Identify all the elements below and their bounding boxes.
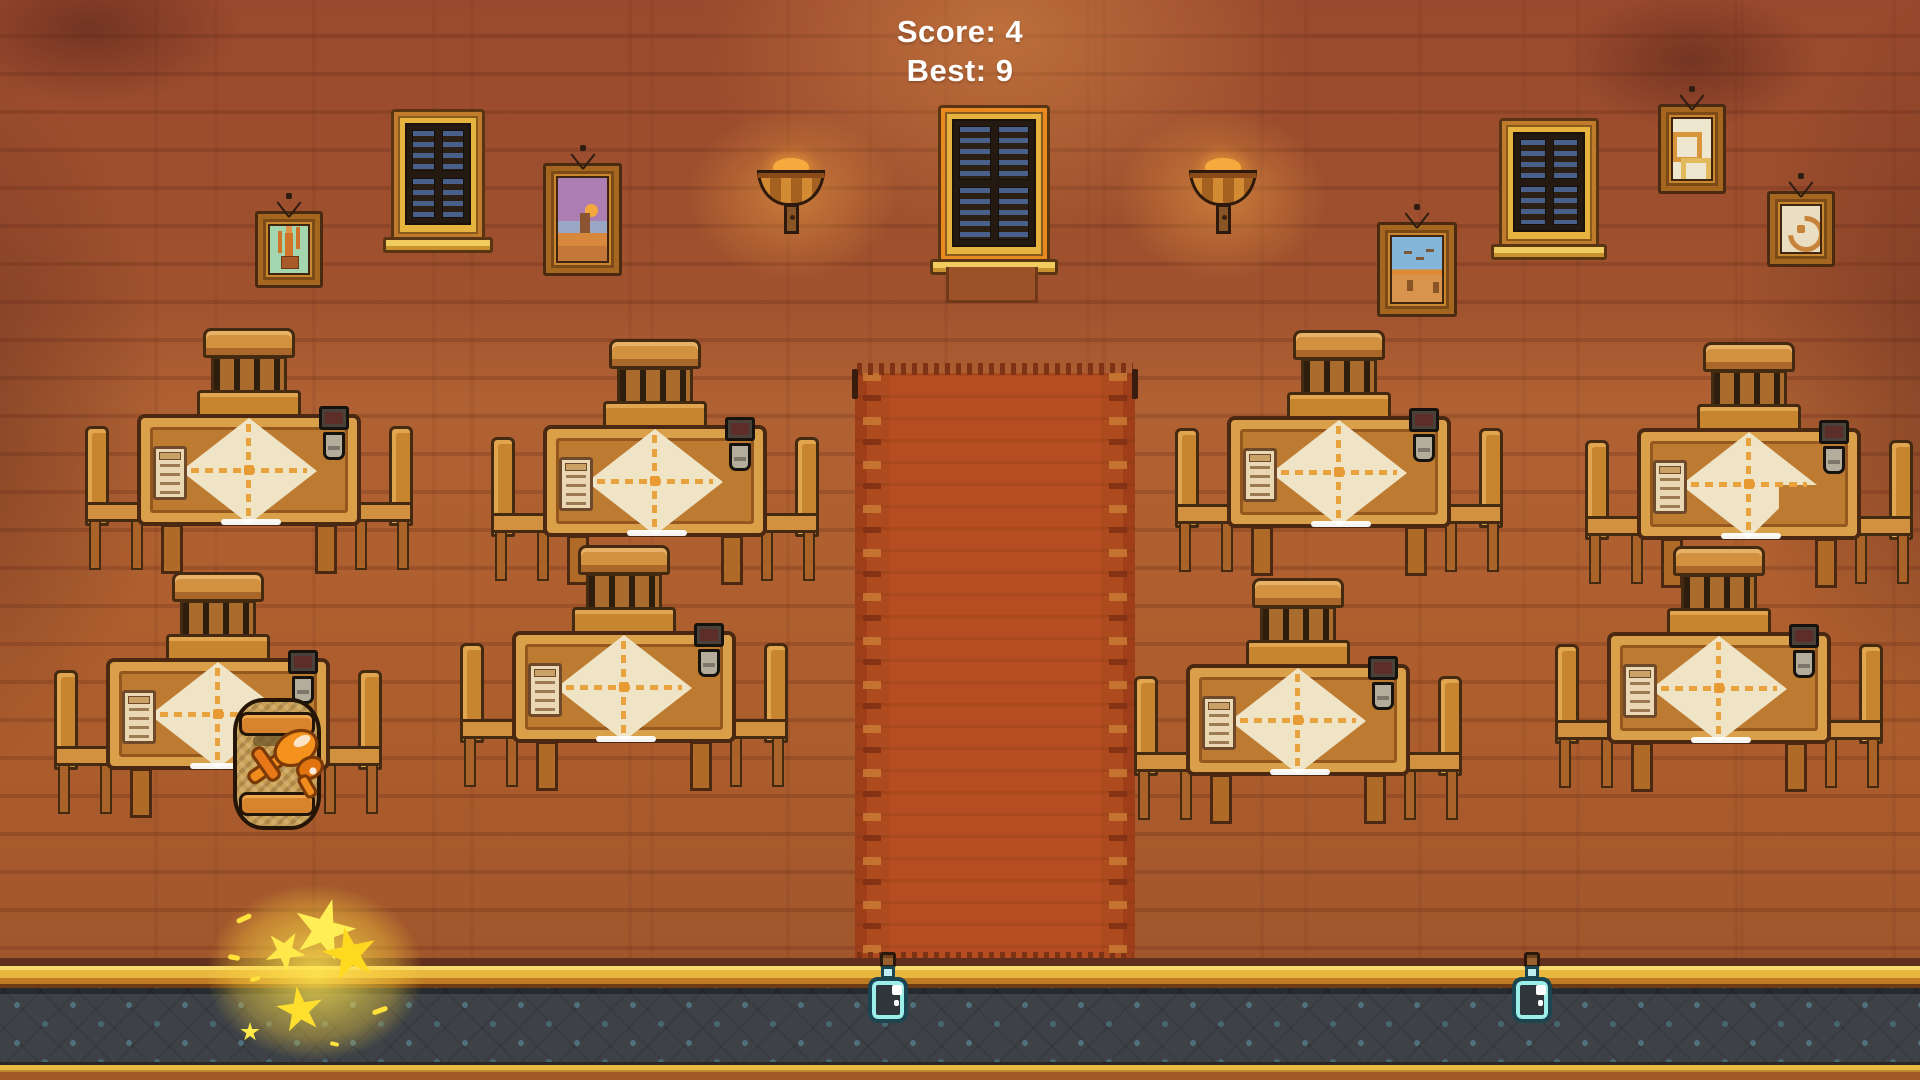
painting-canvas [268, 224, 310, 275]
lantern-cup [1413, 434, 1435, 462]
lantern-top [725, 417, 755, 441]
table-shine [627, 530, 687, 536]
best-score-text: Best: 9 [0, 51, 1920, 90]
chair [1252, 578, 1344, 668]
potion-highlight [894, 1000, 899, 1006]
chair-leg [1867, 738, 1879, 788]
chair-leg [1559, 738, 1571, 788]
lantern-cup [729, 443, 751, 471]
table-lantern [1787, 624, 1823, 682]
wall-lamp [752, 156, 830, 248]
lantern-top [1789, 624, 1819, 648]
table-leg [315, 524, 337, 574]
window-pane [412, 178, 435, 219]
table-leg [1631, 742, 1653, 792]
chair [172, 572, 264, 662]
dining-table-set [1543, 546, 1895, 796]
tablecloth-center-dot [1334, 467, 1344, 477]
chair [1293, 330, 1385, 420]
chair-leg [1179, 522, 1191, 572]
lantern-cup [323, 432, 345, 460]
table-shine [1270, 769, 1330, 775]
window-pane [959, 126, 991, 180]
wall-lamp [1184, 156, 1262, 248]
window-sill [383, 237, 493, 253]
score-hud: Score: 4 Best: 9 [0, 12, 1920, 90]
menu-card [528, 663, 562, 717]
lantern-cup [1793, 650, 1815, 678]
menu-card [1243, 448, 1277, 502]
table-lantern [1407, 408, 1443, 466]
painting-nail [1414, 204, 1420, 210]
chair-back-rail [1293, 330, 1385, 360]
potion-bottle[interactable] [1510, 952, 1554, 1028]
chair-leg [1180, 770, 1192, 820]
dining-table-set [1122, 578, 1474, 828]
tablecloth-center-dot [1714, 683, 1724, 693]
menu-card [153, 446, 187, 500]
painting-canvas [1780, 204, 1822, 254]
chair-leg [1221, 522, 1233, 572]
table-leg [1364, 774, 1386, 824]
dining-table-set [448, 545, 800, 795]
chair-back-rail [172, 572, 264, 602]
chair-back-rail [1673, 546, 1765, 576]
tablecloth-center-dot [619, 682, 629, 692]
chair-leg [803, 531, 815, 581]
lamp-bracket [784, 204, 799, 234]
painting-spiral [1767, 191, 1835, 267]
window-pane [412, 130, 435, 171]
chair-leg [100, 764, 112, 814]
window-pane [1553, 186, 1579, 226]
chair-back-rail [1252, 578, 1344, 608]
carpet-fringe-top [857, 363, 1133, 375]
chair-back-rail [1703, 342, 1795, 372]
chair-leg [1138, 770, 1150, 820]
menu-card [1653, 460, 1687, 514]
table-leg [130, 768, 152, 818]
lantern-top [694, 623, 724, 647]
lantern-top [1368, 656, 1398, 680]
painting-nail [1798, 173, 1804, 179]
window-pane [1553, 139, 1579, 179]
lantern-top [1409, 408, 1439, 432]
chair [1703, 342, 1795, 432]
chair-back-slats [1711, 370, 1787, 408]
lamp-bowl [1189, 170, 1257, 206]
chair [578, 545, 670, 635]
lantern-cup [1372, 682, 1394, 710]
window-panes [405, 123, 471, 225]
chair-leg [355, 520, 367, 570]
window-pedestal [946, 267, 1038, 303]
dining-table-set [1163, 330, 1515, 580]
chair [203, 328, 295, 418]
table-shine [1721, 533, 1781, 539]
painting-canvas [1390, 235, 1444, 304]
painting-canvas [556, 176, 609, 263]
red-carpet [855, 373, 1135, 960]
painting-squares [1658, 104, 1726, 194]
table-shine [596, 736, 656, 742]
table-leg [1785, 742, 1807, 792]
lantern-top [319, 406, 349, 430]
painting-nail [580, 145, 586, 151]
table-leg [690, 741, 712, 791]
table-lantern [1366, 656, 1402, 714]
painting-purple-sunset [543, 163, 622, 276]
potion-highlight [892, 985, 902, 995]
chair-back-slats [1260, 606, 1336, 644]
window [1499, 118, 1599, 248]
plane-sprite[interactable] [240, 714, 332, 806]
table-leg [1251, 526, 1273, 576]
window-panes [952, 119, 1036, 247]
table-shine [221, 519, 281, 525]
dining-table-set [42, 572, 394, 822]
window-pane [1520, 139, 1546, 179]
chair-leg [1404, 770, 1416, 820]
lantern-cup [698, 649, 720, 677]
chair-leg [730, 737, 742, 787]
chair-leg [366, 764, 378, 814]
dining-table-set [73, 328, 425, 578]
tablecloth-center-dot [213, 709, 223, 719]
painting-cactus [255, 211, 323, 288]
carpet-hook [852, 369, 858, 399]
potion-bottle[interactable] [866, 952, 910, 1028]
table-lantern [723, 417, 759, 475]
game-stage: Score: 4 Best: 9 [0, 0, 1920, 1080]
chair-back-slats [211, 356, 287, 394]
window [938, 105, 1050, 263]
chair-back-rail [578, 545, 670, 575]
chair-leg [58, 764, 70, 814]
potion-highlight [1538, 1000, 1543, 1006]
table-lantern [1817, 420, 1853, 478]
table-lantern [692, 623, 728, 681]
lantern-top [288, 650, 318, 674]
chair-leg [1825, 738, 1837, 788]
table-leg [536, 741, 558, 791]
window-panes [1513, 132, 1585, 232]
table-lantern [317, 406, 353, 464]
window-pane [998, 126, 1030, 180]
chair-back-rail [203, 328, 295, 358]
sparkle-glow [170, 855, 460, 1080]
chair-back-slats [586, 573, 662, 611]
chair-back-slats [1681, 574, 1757, 612]
tablecloth-center-dot [650, 476, 660, 486]
potion-body [868, 977, 908, 1023]
window-pane [1520, 186, 1546, 226]
tablecloth-center-dot [244, 465, 254, 475]
window-sill [1491, 244, 1607, 260]
table-leg [1405, 526, 1427, 576]
chair [1673, 546, 1765, 636]
painting-canvas [1671, 117, 1713, 181]
window-pane [442, 130, 465, 171]
menu-card [1623, 664, 1657, 718]
chair-leg [1445, 522, 1457, 572]
potion-highlight [1536, 985, 1546, 995]
window-pane [998, 187, 1030, 241]
chair-leg [1487, 522, 1499, 572]
lantern-cup [1823, 446, 1845, 474]
chair-leg [1446, 770, 1458, 820]
table-shine [1691, 737, 1751, 743]
window [391, 109, 485, 241]
window-pane [442, 178, 465, 219]
lamp-bracket [1216, 204, 1231, 234]
chair-leg [89, 520, 101, 570]
chair-leg [131, 520, 143, 570]
menu-card [1202, 696, 1236, 750]
lantern-top [1819, 420, 1849, 444]
menu-card [122, 690, 156, 744]
potion-body [1512, 977, 1552, 1023]
menu-card [559, 457, 593, 511]
chair-leg [506, 737, 518, 787]
table-leg [1210, 774, 1232, 824]
chair-leg [1601, 738, 1613, 788]
chair-back-slats [180, 600, 256, 638]
window-pane [959, 187, 991, 241]
chair-leg [772, 737, 784, 787]
table-leg [161, 524, 183, 574]
score-text: Score: 4 [0, 12, 1920, 51]
chair-leg [464, 737, 476, 787]
lamp-bowl [757, 170, 825, 206]
chair-back-slats [617, 367, 693, 405]
chair-back-slats [1301, 358, 1377, 396]
painting-nail [286, 193, 292, 199]
chair-leg [397, 520, 409, 570]
tablecloth-center-dot [1744, 479, 1754, 489]
chair [609, 339, 701, 429]
table-shine [1311, 521, 1371, 527]
painting-desert-sky [1377, 222, 1457, 317]
carpet-hook [1132, 369, 1138, 399]
chair-leg [1897, 534, 1909, 584]
tablecloth-center-dot [1293, 715, 1303, 725]
chair-back-rail [609, 339, 701, 369]
